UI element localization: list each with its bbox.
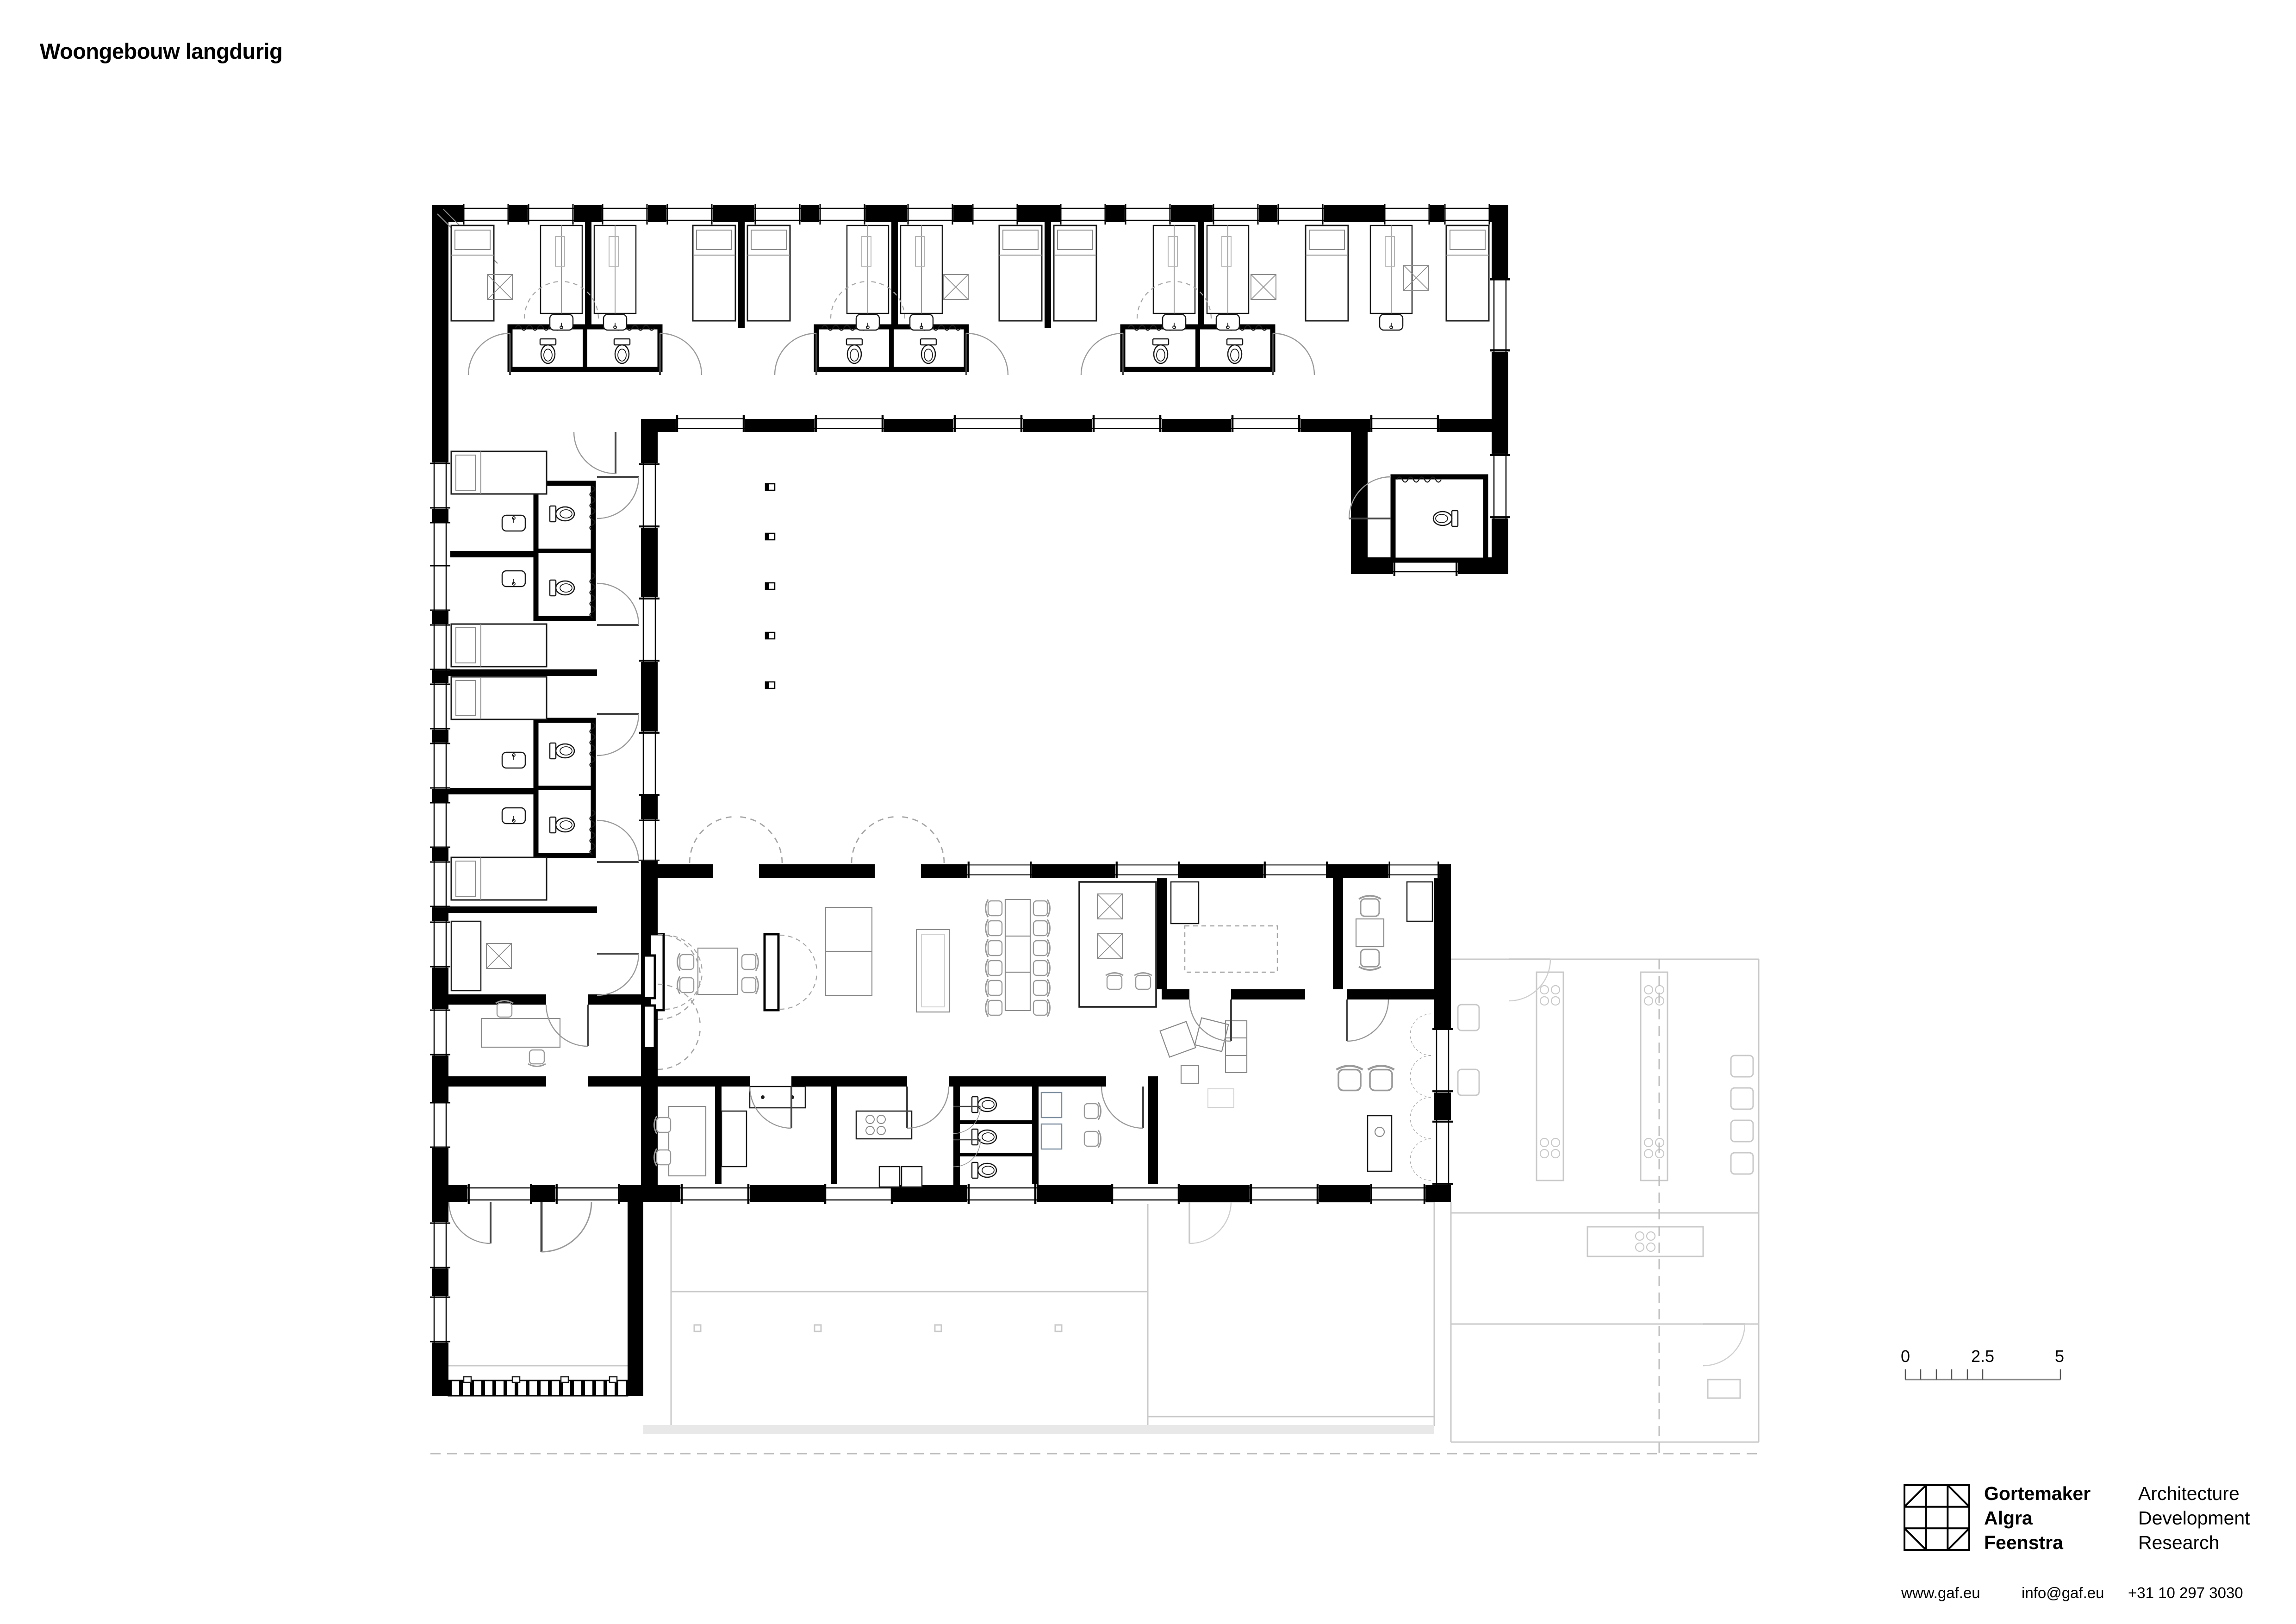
logo-email: info@gaf.eu (2022, 1584, 2104, 1601)
wardrobe-symbol (1370, 225, 1412, 313)
toilet-icon (972, 1097, 996, 1112)
washbasin-icon (1216, 314, 1239, 330)
cabinet-symbol (1407, 882, 1432, 921)
bed-symbol (451, 677, 547, 719)
kitchen-island (856, 1111, 912, 1139)
wardrobe-symbol (901, 225, 942, 313)
toilet-icon (550, 580, 574, 596)
bed-symbol (451, 451, 547, 494)
bed-symbol (747, 225, 790, 321)
chair-symbol (1359, 949, 1381, 970)
bed-symbol (1054, 225, 1096, 321)
cooktop-icon (1540, 986, 1560, 1005)
sink-unit (902, 1167, 922, 1187)
bed-symbol (451, 225, 494, 321)
washbasin-icon (550, 314, 573, 330)
washbasin-icon (1380, 314, 1403, 330)
chair-symbol (678, 953, 694, 971)
scale-label-0: 0 (1901, 1347, 1910, 1366)
door-swing-gray (1703, 1324, 1745, 1366)
toilet-icon (614, 339, 630, 363)
wardrobe-symbol (594, 225, 636, 313)
toilet-icon (550, 506, 574, 522)
kitchen-island (1368, 1116, 1392, 1171)
piano-symbol (826, 907, 872, 995)
table-symbol (698, 948, 738, 994)
scale-bar: 0 2.5 5 (1901, 1347, 2064, 1380)
top-wing-furniture (451, 225, 1489, 330)
toilet-icon (540, 339, 556, 363)
bed-symbol (451, 857, 547, 900)
bed-symbol (1446, 225, 1489, 321)
bed-symbol (451, 624, 547, 667)
bed-symbol (693, 225, 735, 321)
table-symbol (669, 1106, 706, 1176)
cooktop-icon (1644, 1138, 1664, 1158)
chair-symbol (742, 953, 759, 971)
louvre-facade-strip (448, 1380, 628, 1396)
logo-block: Gortemaker Algra Feenstra Architecture D… (1901, 1483, 2250, 1601)
toilet-icon (550, 817, 574, 833)
cooktop-icon (1540, 1138, 1560, 1158)
logo-website: www.gaf.eu (1901, 1584, 1980, 1601)
toilet-icon (550, 743, 574, 759)
hall-furniture (650, 882, 1156, 1017)
desk-chair-symbol (943, 275, 968, 300)
washbasin-icon (502, 571, 525, 587)
logo-discipline-line-3: Research (2138, 1532, 2219, 1553)
bed-symbol (1306, 225, 1348, 321)
desk-chair-symbol (486, 943, 511, 968)
logo-name-line-3: Feenstra (1984, 1532, 2064, 1553)
right-rooms-furniture (1160, 882, 1432, 1181)
logo-discipline-line-1: Architecture (2138, 1483, 2240, 1504)
cabinet-symbol (1171, 882, 1199, 924)
logo-phone: +31 10 297 3030 (2128, 1584, 2243, 1601)
washbasin-icon (502, 752, 525, 768)
curtain-swing (780, 935, 817, 1009)
kitchen-counter (722, 1111, 747, 1167)
gaf-grid-logo-icon (1904, 1485, 1969, 1550)
glazed-room (1079, 882, 1156, 1007)
logo-name-line-1: Gortemaker (1984, 1483, 2091, 1504)
washbasin-icon (910, 314, 933, 330)
chair-symbol (678, 976, 694, 994)
wardrobe-symbol (541, 225, 582, 313)
toilet-icon (846, 339, 862, 363)
table-symbol (481, 1018, 560, 1047)
logo-name-line-2: Algra (1984, 1507, 2033, 1529)
washbasin-icon (604, 314, 627, 330)
wardrobe-symbol (1153, 225, 1195, 313)
locker-cabinet (1041, 1093, 1062, 1118)
logo-discipline-line-2: Development (2138, 1507, 2250, 1529)
long-dining-table (986, 899, 1050, 1017)
canopy-columns (765, 484, 775, 688)
screen-panel (765, 934, 778, 1010)
desk-symbol (451, 921, 481, 991)
locker-cabinet (1041, 1124, 1062, 1149)
desk-chair-symbol (1251, 275, 1276, 300)
washbasin-icon (856, 314, 879, 330)
chair-symbol (1359, 896, 1381, 916)
chair-symbol (528, 1050, 546, 1067)
door-swing-gray (1509, 959, 1550, 1001)
toilet-icon (972, 1129, 996, 1145)
cooktop-icon (1636, 1232, 1655, 1251)
cooktop-icon (1644, 986, 1664, 1005)
dashed-bed-symbol (1185, 926, 1277, 972)
wardrobe-symbol (1207, 225, 1249, 313)
toilet-icon (1153, 339, 1169, 363)
scale-label-5: 5 (2055, 1347, 2064, 1366)
floor-plan-canvas: Woongebouw langdurig 0 2.5 5 Gortemaker … (0, 0, 2296, 1624)
page-title: Woongebouw langdurig (40, 39, 282, 63)
toilet-icon (1227, 339, 1243, 363)
toilet-icon (921, 339, 936, 363)
drawing-sheet: Woongebouw langdurig 0 2.5 5 Gortemaker … (0, 0, 2296, 1624)
curtain-swing (665, 935, 702, 1009)
toilet-icon (972, 1162, 996, 1178)
pool-table-symbol (916, 930, 950, 1012)
washbasin-icon (1163, 314, 1186, 330)
door-swing-gray (1189, 1202, 1231, 1243)
toilet-icon (1433, 511, 1458, 526)
table-symbol (1356, 919, 1384, 947)
bed-symbol (999, 225, 1042, 321)
extract-hood (750, 1087, 805, 1108)
living-room-furniture (1160, 1014, 1431, 1181)
scale-label-2-5: 2.5 (1971, 1347, 1994, 1366)
washbasin-icon (502, 808, 525, 824)
sink-unit (879, 1167, 900, 1187)
wardrobe-symbol (847, 225, 889, 313)
washbasin-icon (502, 515, 525, 531)
chair-symbol (742, 976, 759, 994)
